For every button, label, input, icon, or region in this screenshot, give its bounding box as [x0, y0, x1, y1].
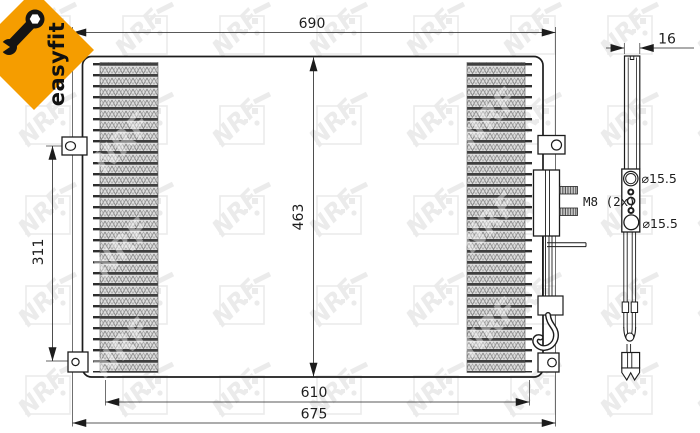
bottom-port-label: ⌀15.5 — [643, 216, 678, 231]
dim-bracket-height: 311 — [31, 146, 53, 361]
core-right: NRF NRF NRF — [453, 63, 532, 373]
technical-drawing: NRF NRF NRF NRF NRF NRF — [0, 0, 700, 433]
receiver-drier — [534, 170, 578, 236]
easyfit-badge: easyfit — [0, 0, 94, 110]
dim-bracket-height-label: 311 — [31, 239, 47, 266]
dim-core-height: 463 — [291, 58, 314, 377]
top-port-label: ⌀15.5 — [642, 171, 677, 186]
pipe-bracket — [538, 296, 563, 315]
mounting-bracket-bottom-left — [68, 352, 88, 372]
mounting-bracket-bottom-right — [538, 353, 559, 372]
m8-stud — [560, 187, 578, 195]
pipe-stub — [547, 243, 586, 247]
badge-label: easyfit — [45, 22, 69, 106]
outlet-pipe — [535, 315, 556, 348]
core-left: NRF NRF NRF — [86, 63, 160, 385]
dim-core-width-label: 610 — [301, 385, 328, 401]
dim-overall-width-label: 690 — [299, 16, 326, 32]
tube-collar — [631, 302, 637, 313]
dim-mounting-width: 675 — [73, 407, 556, 424]
side-u-bend — [624, 327, 636, 353]
port-bottom — [624, 215, 639, 230]
thread-spec-label: M8 (2x) — [583, 194, 636, 209]
tube-collar — [622, 302, 628, 313]
side-channel — [625, 56, 640, 169]
front-view: NRF NRF NRF NRF NRF NRF — [62, 57, 586, 385]
dim-mounting-width-label: 675 — [301, 407, 328, 423]
side-tubes — [624, 232, 636, 328]
dim-depth: 16 — [606, 32, 694, 55]
mounting-bracket-top-left — [62, 137, 87, 155]
dim-core-height-label: 463 — [291, 204, 307, 231]
tank-pipes — [543, 236, 553, 297]
side-view — [622, 56, 640, 380]
dim-depth-label: 16 — [658, 32, 676, 48]
dim-overall-width: 690 — [73, 16, 556, 33]
side-foot — [622, 353, 640, 381]
condenser-technical-drawing: NRF — [0, 0, 700, 433]
mounting-bracket-top-right — [538, 136, 565, 155]
m8-stud — [560, 208, 578, 216]
dim-core-width: 610 — [106, 385, 530, 402]
